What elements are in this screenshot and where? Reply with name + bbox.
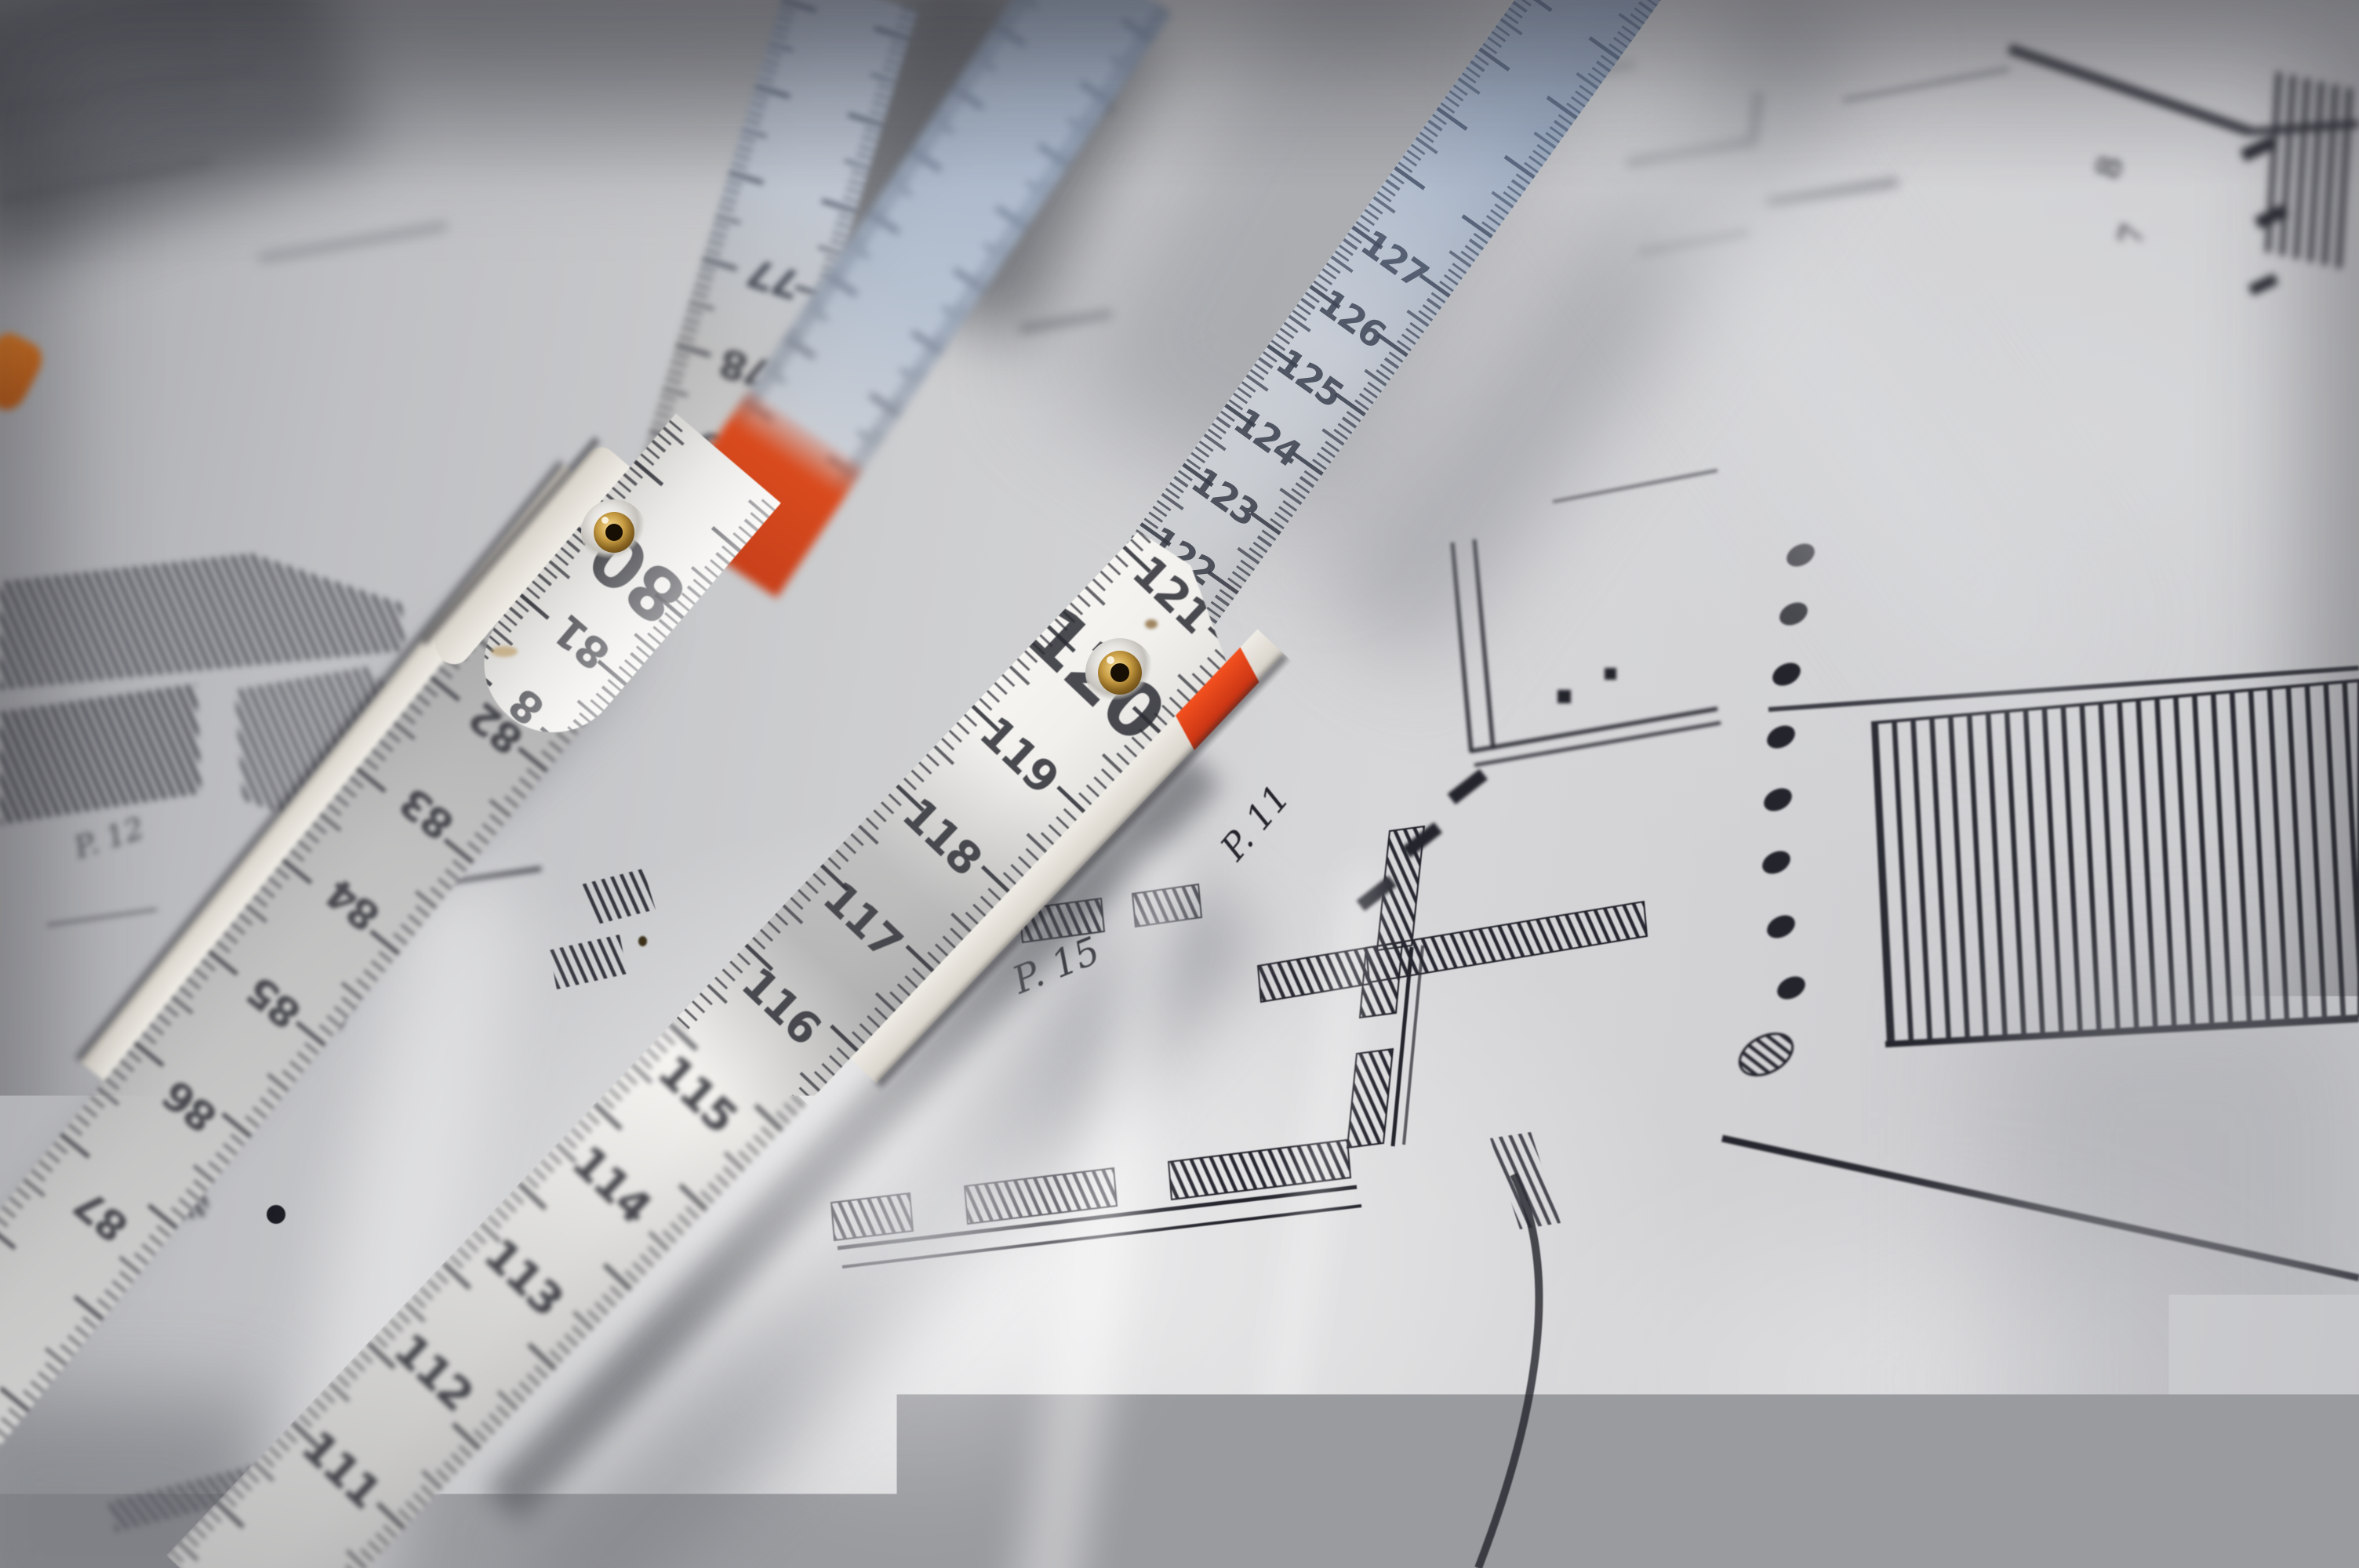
- ruler-tick: [359, 1351, 373, 1364]
- ruler-tick: [1041, 832, 1054, 845]
- ruler-tick: [890, 41, 907, 48]
- ruler-tick: [610, 1286, 623, 1299]
- ruler-tick: [488, 1215, 501, 1229]
- ruler-tick: [511, 786, 525, 799]
- ruler-tick: [438, 878, 452, 891]
- ruler-tick: [467, 841, 482, 854]
- ruler-tick: [814, 1071, 827, 1084]
- ruler-tick: [312, 822, 326, 834]
- ruler-tick: [495, 1207, 508, 1221]
- ruler-number: 116: [732, 958, 830, 1054]
- ruler-tick: [898, 15, 914, 22]
- ruler-tick: [372, 749, 386, 761]
- ruler-tick: [873, 809, 886, 822]
- ruler-tick: [980, 895, 994, 909]
- ruler-tick: [389, 1319, 402, 1332]
- rivet-left-rule: [581, 499, 647, 565]
- ruler-tick: [511, 1389, 525, 1403]
- ruler-tick: [718, 205, 735, 212]
- ruler-tick: [694, 282, 711, 289]
- plan-label-p12: P. 12: [69, 811, 148, 866]
- ruler-tick: [1215, 649, 1228, 662]
- ruler-tick: [452, 1422, 481, 1450]
- ruler-tick: [549, 1349, 562, 1363]
- ruler-tick: [185, 1534, 198, 1547]
- ruler-tick: [829, 1054, 842, 1068]
- ruler-tick: [885, 58, 902, 65]
- ruler-tick: [715, 552, 729, 564]
- ruler-tick: [193, 1526, 206, 1539]
- ruler-tick: [475, 647, 489, 659]
- ruler-tick: [678, 1214, 691, 1228]
- ruler-tick: [469, 654, 483, 666]
- ruler-tick: [363, 969, 377, 982]
- ruler-tick: [981, 866, 1010, 893]
- ruler-tick: [562, 732, 576, 745]
- ruler-tick: [617, 480, 631, 492]
- ruler-tick: [8, 1408, 22, 1421]
- ruler-tick: [567, 726, 581, 739]
- ruler-tick: [652, 440, 666, 452]
- ruler-tick: [630, 652, 644, 665]
- ruler-tick: [566, 540, 580, 553]
- ruler-tick: [561, 546, 575, 559]
- ruler-tick: [284, 1430, 297, 1443]
- ruler-tick: [1230, 633, 1243, 646]
- ruler-tick: [427, 1279, 441, 1292]
- ruler-tick: [1115, 554, 1129, 568]
- ruler-tick: [965, 912, 979, 925]
- ruler-tick: [379, 739, 393, 752]
- ruler-tick: [821, 1063, 834, 1076]
- ruler-tick: [596, 692, 610, 705]
- ruler-tick: [299, 1414, 312, 1428]
- ruler-tick: [465, 1239, 478, 1252]
- ruler-tick: [752, 93, 769, 100]
- ruler-tick: [0, 1426, 8, 1439]
- ruler-tick: [684, 1008, 697, 1022]
- ruler-tick: [911, 769, 924, 782]
- ruler-tick: [648, 1246, 661, 1259]
- ruler-tick: [752, 937, 765, 950]
- ruler-tick: [401, 924, 415, 936]
- ruler-tick: [1499, 18, 1522, 35]
- ruler-tick: [678, 1184, 707, 1211]
- ruler-tick: [625, 1270, 638, 1283]
- ruler-tick: [342, 786, 356, 798]
- ruler-tick: [867, 1015, 880, 1029]
- ruler-tick: [194, 968, 208, 981]
- ruler-tick: [972, 904, 986, 917]
- ruler-tick: [768, 41, 794, 51]
- ruler-tick: [533, 1167, 547, 1181]
- ruler-number: 123: [1183, 459, 1266, 534]
- ruler-tick: [245, 1470, 259, 1483]
- ruler-tick: [451, 1453, 464, 1466]
- ruler-tick: [1161, 493, 1183, 510]
- ruler-tick: [364, 758, 378, 771]
- ruler-tick: [790, 897, 803, 910]
- ruler-tick: [409, 703, 423, 716]
- ruler-tick: [713, 222, 729, 229]
- ruler-tick: [881, 801, 894, 815]
- ruler-tick: [442, 1262, 471, 1290]
- ruler-tick: [692, 291, 708, 298]
- ruler-tick: [224, 931, 238, 944]
- ruler-tick: [835, 849, 849, 862]
- ruler-tick: [297, 840, 311, 853]
- ruler-tick: [208, 1510, 221, 1523]
- ruler-tick: [866, 817, 879, 830]
- ruler-tick: [1101, 768, 1114, 782]
- ruler-tick: [765, 49, 782, 56]
- ruler-tick: [208, 1161, 222, 1174]
- ruler-tick: [578, 1120, 591, 1133]
- ruler-tick: [223, 1494, 236, 1507]
- ruler-tick: [434, 1271, 448, 1284]
- ruler-tick: [723, 1167, 736, 1180]
- ruler-tick: [935, 943, 948, 956]
- ruler-tick: [170, 1550, 184, 1563]
- ruler-tick: [68, 1123, 82, 1136]
- ruler-tick: [1056, 786, 1085, 813]
- ruler-tick: [474, 1429, 487, 1443]
- ruler-tick: [571, 1127, 584, 1141]
- rivet-hole: [1110, 663, 1129, 682]
- ruler-tick: [594, 1301, 608, 1315]
- ruler-tick: [742, 127, 768, 137]
- ruler-tick: [1018, 856, 1031, 869]
- ruler-tick: [1192, 673, 1205, 686]
- ruler-tick: [405, 1501, 419, 1514]
- ruler-tick: [401, 713, 415, 725]
- ruler-tick: [38, 1160, 53, 1173]
- ruler-tick: [335, 794, 349, 807]
- ruler-tick: [697, 274, 714, 281]
- ruler-tick: [253, 895, 267, 908]
- photo-stage: 8 7 P. 12 45: [0, 0, 2359, 1568]
- ruler-number: 113: [474, 1229, 572, 1326]
- ruler-tick: [208, 950, 238, 976]
- ruler-tick: [430, 887, 444, 899]
- ruler-tick: [587, 1309, 601, 1323]
- ruler-tick: [193, 1179, 207, 1192]
- ruler-tick: [737, 953, 751, 966]
- ruler-tick: [888, 49, 904, 56]
- ruler-tick: [994, 682, 1007, 695]
- ruler-tick: [0, 1215, 9, 1228]
- ruler-tick: [943, 935, 956, 949]
- ruler-tick: [416, 694, 430, 706]
- ruler-tick: [669, 420, 683, 433]
- ruler-tick: [590, 699, 604, 712]
- ruler-tick: [918, 761, 932, 775]
- ruler-tick: [761, 1127, 774, 1140]
- rivet-glint: [1107, 656, 1114, 664]
- ruler-tick: [1288, 315, 1310, 332]
- ruler-tick: [1245, 375, 1268, 392]
- ruler-tick: [663, 1230, 676, 1243]
- ruler-tick: [1533, 132, 1556, 149]
- ruler-tick: [276, 1438, 289, 1451]
- ruler-tick: [736, 144, 753, 151]
- ruler-tick: [843, 841, 856, 855]
- ruler-number: 112: [384, 1324, 482, 1421]
- ruler-tick: [376, 1502, 405, 1530]
- ruler-tick: [1, 1417, 15, 1430]
- ruler-tick: [710, 230, 726, 238]
- ruler-tick: [956, 721, 969, 735]
- ruler-tick: [906, 945, 935, 972]
- ruler-tick: [231, 923, 245, 935]
- ruler-tick: [538, 573, 552, 586]
- ruler-tick: [31, 1169, 45, 1181]
- ruler-tick: [616, 1080, 630, 1093]
- ruler-tick: [420, 1287, 433, 1300]
- ruler-tick: [1279, 488, 1302, 505]
- ruler-tick: [201, 1518, 214, 1531]
- ruler-tick: [700, 1190, 714, 1203]
- ruler-tick: [238, 913, 253, 926]
- ruler-tick: [503, 614, 518, 626]
- rivet-middle-rule: [1085, 638, 1154, 707]
- ruler-tick: [430, 676, 460, 702]
- ruler-tick: [1093, 776, 1107, 789]
- ruler-tick: [527, 1374, 540, 1387]
- ruler-tick: [282, 858, 312, 884]
- ruler-tick: [187, 978, 201, 990]
- ruler-tick: [758, 75, 774, 82]
- ruler-tick: [771, 32, 787, 39]
- ruler-number: 87: [67, 1181, 138, 1251]
- ruler-tick: [874, 1007, 888, 1021]
- ruler-tick: [601, 1096, 614, 1109]
- ruler-tick: [1372, 196, 1395, 213]
- ruler-tick: [689, 299, 714, 310]
- ruler-tick: [371, 960, 385, 973]
- ruler-tick: [1138, 531, 1151, 544]
- ruler-tick: [927, 951, 940, 964]
- ruler-tick: [423, 685, 438, 698]
- ruler-tick: [525, 1175, 539, 1189]
- ruler-number: 114: [562, 1137, 660, 1233]
- ruler-tick: [850, 833, 863, 847]
- ruler-tick: [457, 1247, 471, 1261]
- ruler-number: 84: [318, 869, 390, 940]
- ruler-tick: [878, 84, 894, 91]
- ruler-tick: [412, 1295, 425, 1308]
- ruler-tick: [1001, 673, 1015, 687]
- ruler-tick: [503, 1200, 516, 1213]
- ruler-tick: [692, 1000, 705, 1014]
- ruler-tick: [518, 1182, 547, 1210]
- ruler-tick: [314, 1399, 327, 1412]
- ruler-tick: [707, 239, 724, 246]
- ruler-tick: [729, 960, 743, 974]
- ruler-tick: [134, 1041, 165, 1067]
- ruler-tick: [646, 1048, 660, 1062]
- ruler-tick: [705, 248, 722, 255]
- ruler-tick: [526, 768, 540, 781]
- ruler-tick: [746, 1142, 759, 1156]
- ruler-tick: [761, 499, 776, 511]
- ruler-tick: [1237, 625, 1250, 638]
- ruler-tick: [127, 1051, 141, 1063]
- ruler-tick: [594, 1102, 623, 1130]
- ruler-tick: [498, 620, 512, 633]
- ruler-tick: [344, 1367, 358, 1380]
- ruler-tick: [715, 1174, 729, 1188]
- ruler-tick: [398, 1508, 412, 1522]
- ruler-tick: [216, 1501, 245, 1528]
- ruler-tick: [67, 1335, 82, 1348]
- ruler-tick: [830, 1025, 859, 1052]
- ruler-tick: [760, 67, 776, 74]
- ruler-tick: [678, 334, 695, 341]
- ruler-tick: [378, 951, 392, 964]
- ruler-tick: [421, 1485, 434, 1498]
- ruler-tick: [322, 1390, 335, 1403]
- ruler-tick: [509, 607, 523, 619]
- ruler-tick: [1448, 251, 1471, 268]
- ruler-tick: [171, 1207, 185, 1219]
- ruler-tick: [376, 1533, 389, 1546]
- ruler-tick: [565, 1334, 578, 1347]
- ruler-tick: [444, 1461, 457, 1474]
- ruler-tick: [871, 72, 896, 82]
- ruler-tick: [612, 487, 626, 499]
- ruler-tick: [496, 1405, 510, 1418]
- ruler-tick: [700, 993, 713, 1006]
- ruler-tick: [837, 1047, 850, 1060]
- ruler-tick: [504, 796, 518, 808]
- ruler-tick: [16, 1188, 31, 1200]
- ruler-tick: [436, 1469, 449, 1483]
- ruler-tick: [926, 753, 940, 767]
- ruler-tick: [75, 1114, 89, 1127]
- ruler-tick: [326, 1015, 340, 1028]
- ruler-tick: [450, 1255, 463, 1269]
- ruler-tick: [216, 1152, 230, 1165]
- plan-topright-blur: 8 7: [1843, 49, 2359, 296]
- plan-label-p11: P. 11: [1212, 777, 1298, 869]
- plan-column-dots: [1758, 539, 1819, 1004]
- ruler-number: 83: [392, 779, 463, 849]
- ruler-tick: [1049, 824, 1062, 837]
- ruler-tick: [267, 1088, 282, 1101]
- ruler-number: 118: [892, 789, 990, 885]
- ruler-tick: [1199, 665, 1212, 678]
- ruler-tick: [852, 1031, 865, 1044]
- ruler-tick: [904, 975, 918, 989]
- ruler-tick: [1415, 137, 1438, 154]
- ruler-tick: [602, 686, 616, 699]
- ruler-tick: [912, 967, 925, 981]
- ruler-tick: [31, 1381, 45, 1393]
- ruler-tick: [356, 767, 387, 793]
- ruler-tick: [798, 889, 811, 902]
- ruler-tick: [489, 1413, 502, 1426]
- ruler-tick: [554, 554, 569, 566]
- ruler-tick: [638, 1056, 652, 1069]
- ruler-tick: [112, 1069, 126, 1081]
- ruler-tick: [897, 983, 911, 996]
- ruler-tick: [1406, 310, 1429, 327]
- ruler-tick: [640, 1254, 653, 1267]
- ruler-tick: [261, 1454, 274, 1468]
- ruler-tick: [526, 586, 540, 599]
- ruler-tick: [624, 659, 638, 672]
- ruler-tick: [1203, 434, 1226, 451]
- ruler-tick: [534, 1366, 547, 1379]
- ruler-tick: [540, 1160, 554, 1173]
- ruler-tick: [382, 1327, 395, 1340]
- ruler-tick: [383, 1525, 396, 1538]
- ruler-tick: [305, 831, 319, 844]
- ruler-tick: [776, 15, 793, 22]
- ruler-tick: [142, 1033, 156, 1045]
- ruler-tick: [896, 24, 912, 31]
- ruler-tick: [60, 1133, 90, 1159]
- ruler-tick: [1457, 78, 1480, 95]
- ruler-tick: [798, 1087, 812, 1100]
- ruler-tick: [783, 1102, 797, 1116]
- ruler-tick: [739, 136, 755, 143]
- ruler-tick: [445, 869, 459, 881]
- ruler-tick: [416, 906, 430, 918]
- plan-label-8: 8: [2088, 152, 2130, 183]
- ruler-tick: [700, 265, 716, 272]
- ruler-tick: [327, 804, 341, 816]
- ruler-tick: [704, 565, 718, 578]
- ruler-tick: [202, 959, 216, 971]
- ruler-tick: [734, 153, 751, 160]
- ruler-tick: [164, 1005, 178, 1018]
- ruler-tick: [708, 1182, 722, 1196]
- ruler-tick: [1330, 256, 1353, 273]
- ruler-number: 126: [1310, 281, 1393, 356]
- rivet-hole: [605, 524, 623, 541]
- ruler-tick: [654, 1040, 667, 1054]
- ruler-number: 117: [813, 873, 911, 969]
- ruler-tick: [45, 1363, 60, 1375]
- ruler-tick: [97, 1298, 111, 1311]
- ruler-tick: [646, 447, 660, 459]
- ruler-tick: [1208, 626, 1237, 654]
- ruler-tick: [275, 868, 289, 880]
- ruler-tick: [304, 1043, 318, 1055]
- ruler-tick: [661, 1032, 674, 1045]
- ruler-tick: [178, 1198, 192, 1210]
- ruler-tick: [150, 1023, 164, 1036]
- ruler-tick: [775, 913, 788, 926]
- ruler-tick: [603, 1263, 632, 1290]
- ruler-tick: [141, 1243, 155, 1256]
- ruler-tick: [186, 1189, 200, 1201]
- ruler-tick: [532, 580, 546, 593]
- ruler-tick: [987, 887, 1001, 901]
- ruler-tick: [1092, 579, 1106, 592]
- ruler-tick: [573, 719, 587, 731]
- ruler-tick: [1026, 848, 1039, 861]
- ruler-tick: [1086, 784, 1100, 797]
- ruler-tick: [260, 1098, 274, 1110]
- ruler-tick: [9, 1196, 23, 1209]
- ruler-tick: [1364, 369, 1387, 387]
- ruler-tick: [306, 1406, 319, 1420]
- ruler-tick: [268, 1446, 282, 1459]
- ruler-tick: [619, 666, 633, 678]
